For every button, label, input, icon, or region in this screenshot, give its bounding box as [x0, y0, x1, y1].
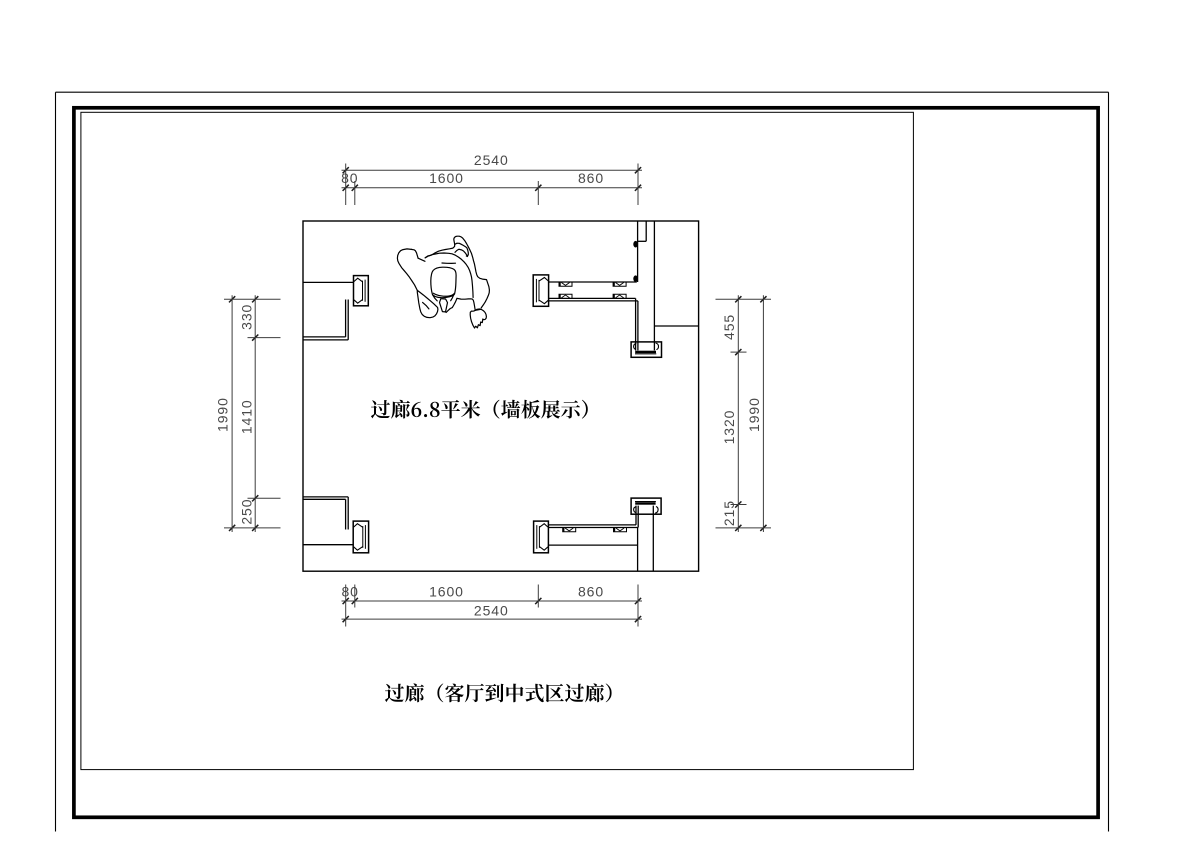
svg-text:80: 80: [342, 583, 359, 599]
svg-text:1990: 1990: [214, 397, 230, 432]
svg-text:215: 215: [721, 500, 737, 526]
svg-text:455: 455: [721, 314, 737, 340]
svg-text:1990: 1990: [746, 397, 762, 432]
svg-text:2540: 2540: [474, 603, 509, 619]
svg-text:860: 860: [578, 170, 604, 186]
svg-text:250: 250: [239, 499, 255, 525]
svg-text:1320: 1320: [721, 410, 737, 445]
svg-text:860: 860: [578, 583, 604, 599]
svg-text:2540: 2540: [474, 152, 509, 168]
svg-text:80: 80: [341, 170, 358, 186]
svg-text:1600: 1600: [429, 583, 464, 599]
svg-text:1600: 1600: [429, 170, 464, 186]
svg-text:1410: 1410: [239, 399, 255, 434]
svg-text:330: 330: [239, 304, 255, 330]
